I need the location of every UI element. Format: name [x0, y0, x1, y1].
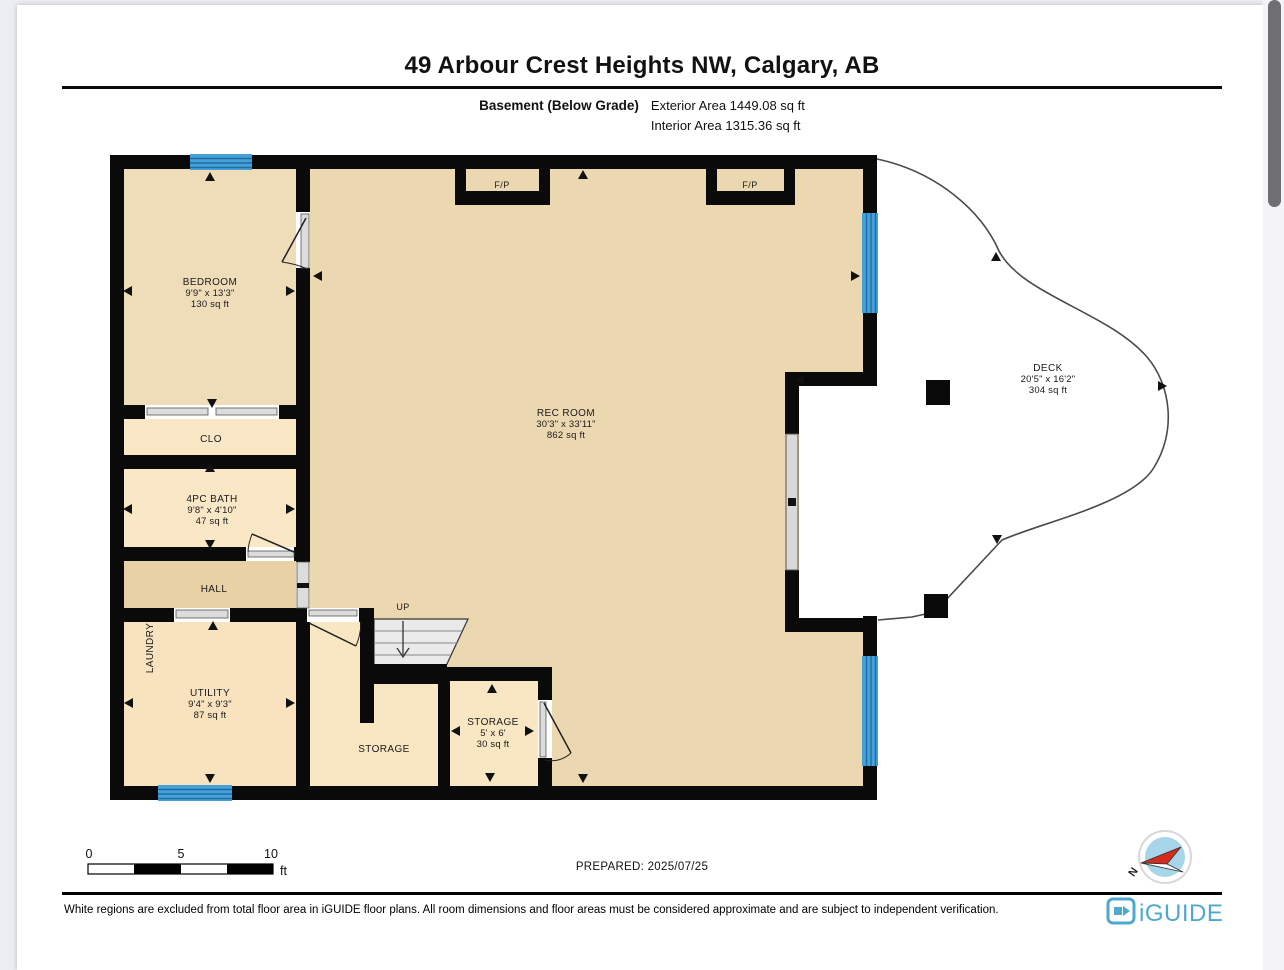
scale-tick-0: 0 — [86, 847, 93, 861]
bedroom-clo-opening — [147, 408, 208, 415]
scale-tick-10: 10 — [264, 847, 278, 861]
hall-label: HALL — [201, 584, 228, 595]
storage-a-label: STORAGE — [358, 744, 410, 755]
storage-b-dims: 5' x 6' — [480, 728, 506, 739]
deck-dims: 20'5" x 16'2" — [1021, 374, 1076, 385]
bedroom-label: BEDROOM — [183, 277, 237, 288]
storage-b-door-panel — [540, 702, 546, 757]
rec-room-sqft: 862 sq ft — [547, 430, 585, 441]
fireplace-1-label: F/P — [494, 180, 509, 190]
bedroom-door-panel — [301, 214, 309, 268]
deck-outline — [877, 159, 1168, 620]
compass: N — [1126, 831, 1191, 883]
utility-sqft: 87 sq ft — [194, 710, 227, 721]
room-fills — [122, 169, 877, 786]
floor-plan: BEDROOM 9'9" x 13'3" 130 sq ft CLO 4PC B… — [0, 0, 1284, 970]
deck-sqft: 304 sq ft — [1029, 385, 1067, 396]
stairs-up-label: UP — [396, 602, 409, 612]
bath-door-panel — [248, 551, 294, 557]
window-rec-right-lower — [862, 656, 878, 766]
utility-label: UTILITY — [190, 688, 230, 699]
footer-divider — [62, 892, 1222, 895]
bath-sqft: 47 sq ft — [196, 516, 229, 527]
hall-utility-opening — [176, 610, 228, 618]
deck-notch — [799, 386, 877, 618]
window-rec-right-upper — [862, 213, 878, 313]
storage-b-label: STORAGE — [467, 717, 519, 728]
storage-a-door-panel — [309, 610, 357, 616]
deck-post-2 — [924, 594, 948, 618]
iguide-logo: iGUIDE — [1108, 899, 1223, 927]
footer-disclaimer: White regions are excluded from total fl… — [64, 904, 999, 916]
closet-label: CLO — [200, 434, 222, 445]
window-bedroom-top — [190, 154, 252, 170]
bath-label: 4PC BATH — [186, 494, 237, 505]
iguide-logo-text: iGUIDE — [1139, 900, 1223, 927]
fireplace-2-label: F/P — [742, 180, 757, 190]
deck-post-1 — [926, 380, 950, 405]
deck-label: DECK — [1033, 363, 1062, 374]
bedroom-dims: 9'9" x 13'3" — [185, 288, 234, 299]
scale-tick-5: 5 — [178, 847, 185, 861]
rec-room-label: REC ROOM — [537, 408, 595, 419]
rec-room-dims: 30'3" x 33'11" — [536, 419, 595, 430]
prepared-date: PREPARED: 2025/07/25 — [0, 861, 1284, 873]
window-utility-bottom — [158, 785, 232, 801]
bedroom-sqft: 130 sq ft — [191, 299, 229, 310]
bath-dims: 9'8" x 4'10" — [187, 505, 236, 516]
laundry-label: LAUNDRY — [145, 623, 156, 673]
utility-dims: 9'4" x 9'3" — [188, 699, 232, 710]
storage-b-sqft: 30 sq ft — [477, 739, 510, 750]
